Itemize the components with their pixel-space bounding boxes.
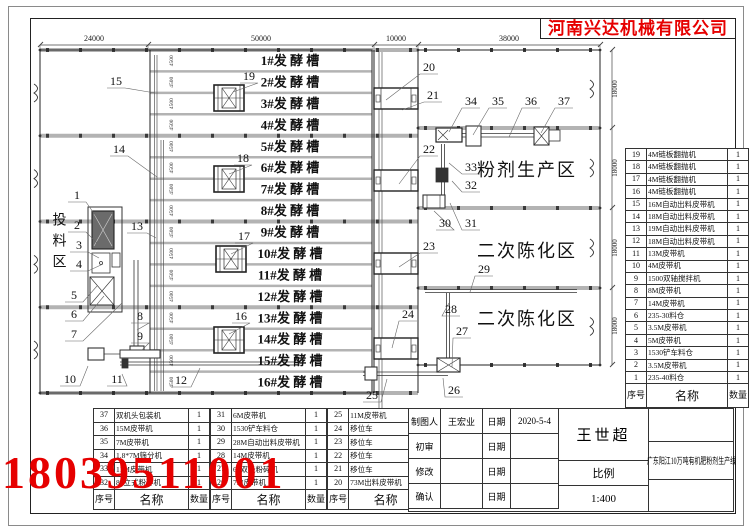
- table-row: 31530铲车料仓1: [626, 347, 749, 359]
- callout: 4: [76, 257, 82, 271]
- trough-label: 14#发 酵 槽: [257, 332, 322, 347]
- tb-date: 2020-5-4: [511, 409, 559, 434]
- callout: 24: [402, 307, 414, 321]
- callout: 8: [137, 309, 143, 323]
- callout: 16: [235, 309, 247, 323]
- table-row: 1319M自动出料皮带机1: [626, 223, 749, 235]
- trough-label: 6#发 酵 槽: [261, 160, 320, 175]
- scale-label: 比例: [559, 461, 649, 487]
- callout: 27: [456, 324, 468, 338]
- callout: 6: [71, 307, 77, 321]
- dim-38000: 38000: [499, 34, 519, 43]
- table-row: 301530铲车料仓1: [211, 422, 327, 436]
- dim-18000-bay2: 18000: [611, 159, 619, 177]
- callout: 13: [131, 219, 143, 233]
- callout: 15: [110, 74, 122, 88]
- table-row: 45M皮带机1: [626, 334, 749, 346]
- callout: 25: [366, 388, 378, 402]
- trough-label: 1#发 酵 槽: [261, 53, 320, 68]
- tb-label: 制图人: [409, 409, 441, 434]
- dim-18000-bay4: 18000: [611, 317, 619, 335]
- callout: 29: [478, 262, 490, 276]
- svg-text:4500: 4500: [169, 226, 175, 237]
- table-row: 1218M自动出料皮带机1: [626, 235, 749, 247]
- trough-label: 3#发 酵 槽: [261, 96, 320, 111]
- table-row: 91500双轴搅拌机1: [626, 272, 749, 284]
- callout: 2: [74, 218, 80, 232]
- title-block-signatures: 制图人 王宏业 日期 2020-5-4 初审 日期 修改 日期 确认 日期: [409, 409, 559, 511]
- callout: 10: [64, 372, 76, 386]
- table-row: 184M链板翻抛机1: [626, 161, 749, 173]
- table-row: 1418M自动出料皮带机1: [626, 210, 749, 222]
- callout: 37: [558, 94, 570, 108]
- callout: 5: [71, 288, 77, 302]
- svg-text:4500: 4500: [169, 76, 175, 87]
- callout: 3: [76, 238, 82, 252]
- tb-empty-cell: [649, 480, 733, 511]
- svg-text:4500: 4500: [169, 291, 175, 302]
- callout: 21: [427, 88, 439, 102]
- svg-text:4500: 4500: [169, 269, 175, 280]
- title-block-center: 王世超 比例 1:400: [559, 409, 649, 511]
- callout: 9: [137, 329, 143, 343]
- callout: 26: [448, 383, 460, 397]
- callout: 31: [465, 216, 477, 230]
- title-block: 制图人 王宏业 日期 2020-5-4 初审 日期 修改 日期 确认 日期 王世…: [408, 408, 734, 512]
- tb-value: [441, 459, 483, 484]
- tb-label: 修改: [409, 459, 441, 484]
- callout: 34: [465, 94, 477, 108]
- svg-text:4500: 4500: [169, 119, 175, 130]
- table-row: 316M皮带机1: [211, 409, 327, 423]
- table-row: 1113M皮带机1: [626, 248, 749, 260]
- trough-label: 12#发 酵 槽: [257, 289, 322, 304]
- tb-date: [511, 484, 559, 509]
- trough-label: 2#发 酵 槽: [261, 74, 320, 89]
- svg-text:4500: 4500: [169, 55, 175, 66]
- dim-50000: 50000: [251, 34, 271, 43]
- table-row: 6235-30料仓1: [626, 310, 749, 322]
- trough-label: 16#发 酵 槽: [257, 375, 322, 390]
- tb-value: 王宏业: [441, 409, 483, 434]
- trough-label: 11#发 酵 槽: [258, 267, 322, 282]
- callout: 11: [111, 372, 123, 386]
- trough-label: 5#发 酵 槽: [261, 139, 320, 154]
- callout: 17: [238, 229, 250, 243]
- tb-value: [441, 484, 483, 509]
- svg-text:4500: 4500: [169, 162, 175, 173]
- trough-label: 4#发 酵 槽: [261, 117, 320, 132]
- callout: 14: [113, 142, 125, 156]
- trough-label: 15#发 酵 槽: [257, 353, 322, 368]
- tb-date-label: 日期: [483, 409, 511, 434]
- table-row: 194M链板翻抛机1: [626, 149, 749, 161]
- table-header-row: 序号名称数量: [626, 384, 749, 408]
- callout: 28: [445, 302, 457, 316]
- tb-label: 初审: [409, 434, 441, 459]
- svg-text:4500: 4500: [169, 248, 175, 259]
- callout: 30: [439, 216, 451, 230]
- svg-text:4500: 4500: [169, 184, 175, 195]
- table-row: 23.5M皮带机1: [626, 359, 749, 371]
- svg-text:4500: 4500: [169, 98, 175, 109]
- tb-label: 确认: [409, 484, 441, 509]
- scale-value: 1:400: [559, 486, 649, 511]
- callout: 22: [423, 142, 435, 156]
- callout: 36: [525, 94, 537, 108]
- phone-watermark: 18039511001: [2, 446, 285, 499]
- callout: 23: [423, 239, 435, 253]
- tb-date-label: 日期: [483, 434, 511, 459]
- project-name-text: 广东阳江10万吨有机肥粉剂生产线: [646, 454, 735, 467]
- svg-text:4500: 4500: [169, 334, 175, 345]
- area-label-feeding: 投料区: [51, 212, 67, 275]
- table-row: 88M皮带机1: [626, 285, 749, 297]
- table-row: 1235-40料仓1: [626, 372, 749, 384]
- callout: 12: [175, 373, 187, 387]
- svg-text:4500: 4500: [169, 312, 175, 323]
- area-label-aging-lower: 二次陈化区: [477, 309, 577, 329]
- table-row: 104M皮带机1: [626, 260, 749, 272]
- project-name: 广东阳江10万吨有机肥粉剂生产线: [649, 442, 733, 481]
- dim-10000: 10000: [386, 34, 406, 43]
- callout: 1: [74, 188, 80, 202]
- equipment-table-right: 194M链板翻抛机1 184M链板翻抛机1 174M链板翻抛机1 164M链板翻…: [625, 148, 749, 408]
- aging-area-equipment: [363, 290, 577, 381]
- table-row: 174M链板翻抛机1: [626, 173, 749, 185]
- tb-date-label: 日期: [483, 459, 511, 484]
- tb-date: [511, 459, 559, 484]
- callout: 32: [465, 178, 477, 192]
- svg-text:4500: 4500: [169, 355, 175, 366]
- table-row: 1516M自动出料皮带机1: [626, 198, 749, 210]
- callout: 33: [465, 160, 477, 174]
- tb-empty-cell: [649, 409, 733, 442]
- table-row: 3615M皮带机1: [94, 422, 210, 436]
- svg-text:4500: 4500: [169, 205, 175, 216]
- table-row: 53.5M皮带机1: [626, 322, 749, 334]
- dim-18000-bay1: 18000: [611, 80, 619, 98]
- dim-18000-bay3: 18000: [611, 239, 619, 257]
- table-row: 714M皮带机1: [626, 297, 749, 309]
- tb-value: [441, 434, 483, 459]
- trough-label: 10#发 酵 槽: [257, 246, 322, 261]
- callout: 18: [237, 151, 249, 165]
- area-label-aging-upper: 二次陈化区: [477, 241, 577, 261]
- svg-text:4500: 4500: [169, 141, 175, 152]
- approver-name: 王世超: [559, 409, 649, 461]
- trough-label: 7#发 酵 槽: [261, 182, 320, 197]
- tb-date: [511, 434, 559, 459]
- callout: 7: [71, 327, 77, 341]
- callout: 35: [492, 94, 504, 108]
- callout: 19: [243, 69, 255, 83]
- tb-date-label: 日期: [483, 484, 511, 509]
- dim-24000: 24000: [84, 34, 104, 43]
- callout: 20: [423, 60, 435, 74]
- trough-label: 8#发 酵 槽: [261, 203, 320, 218]
- table-row: 164M链板翻抛机1: [626, 186, 749, 198]
- drawing-sheet: 河南兴达机械有限公司 24000: [0, 0, 750, 530]
- table-row: 37双机头包装机1: [94, 409, 210, 423]
- trough-label: 13#发 酵 槽: [257, 310, 322, 325]
- trough-label: 9#发 酵 槽: [261, 225, 320, 240]
- area-label-powder: 粉剂生产区: [477, 160, 577, 180]
- title-block-right: 广东阳江10万吨有机肥粉剂生产线: [649, 409, 733, 511]
